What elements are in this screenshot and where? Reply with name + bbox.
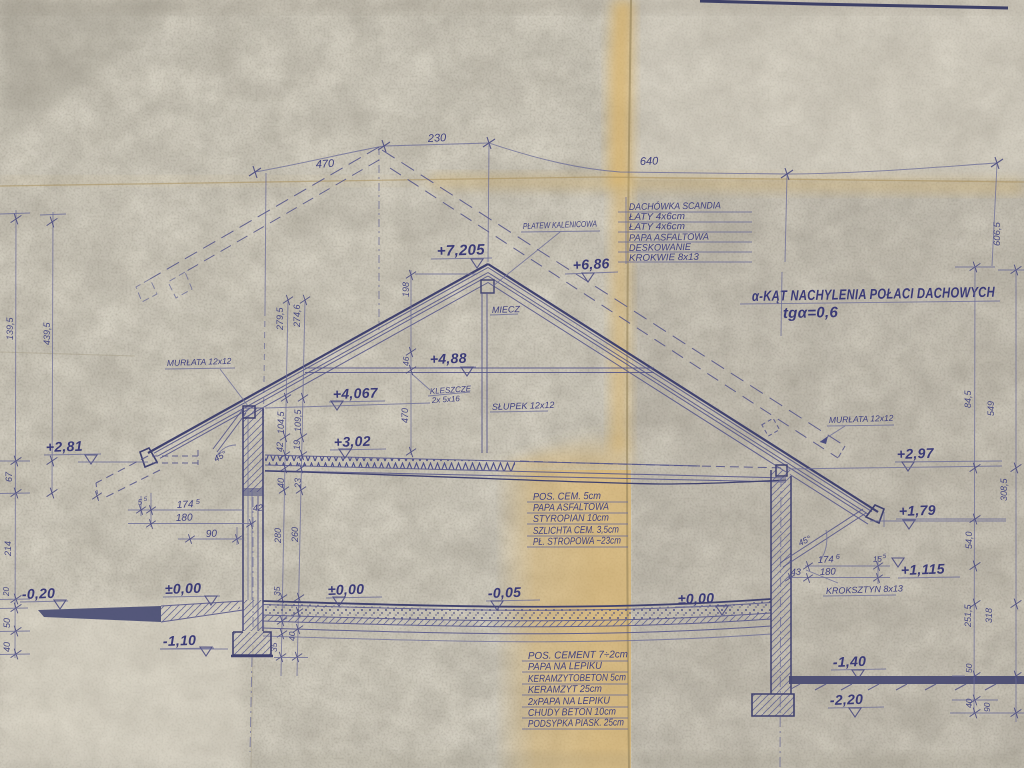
svg-text:+1,79: +1,79	[899, 502, 936, 519]
svg-text:5: 5	[196, 499, 200, 506]
svg-text:KERAMZYT 25cm: KERAMZYT 25cm	[528, 684, 602, 696]
svg-text:23: 23	[293, 478, 303, 489]
svg-text:-2,20: -2,20	[830, 691, 864, 708]
svg-text:439,5: 439,5	[42, 321, 52, 345]
svg-text:54,0: 54,0	[964, 531, 974, 549]
svg-text:470: 470	[315, 158, 335, 171]
svg-text:470: 470	[400, 408, 410, 423]
svg-text:606,5: 606,5	[992, 222, 1003, 246]
svg-text:46: 46	[401, 356, 411, 366]
svg-text:318: 318	[984, 608, 994, 623]
svg-text:+1,115: +1,115	[901, 560, 946, 578]
svg-text:67: 67	[4, 471, 14, 482]
svg-text:6: 6	[836, 554, 840, 561]
svg-text:198: 198	[401, 282, 411, 297]
svg-text:50: 50	[964, 663, 974, 673]
svg-text:40: 40	[2, 642, 12, 652]
svg-text:104,5: 104,5	[276, 410, 286, 434]
svg-text:+4,067: +4,067	[333, 384, 379, 402]
svg-text:±0,00: ±0,00	[678, 590, 715, 607]
svg-text:174: 174	[177, 499, 195, 511]
svg-text:PAPA NA LEPIKU: PAPA NA LEPIKU	[528, 661, 603, 673]
svg-text:40: 40	[276, 478, 286, 488]
svg-text:84,5: 84,5	[963, 389, 973, 408]
svg-text:-1,10: -1,10	[163, 632, 197, 649]
svg-text:42: 42	[275, 442, 285, 452]
svg-text:KERAMZYTOBETON 5cm: KERAMZYTOBETON 5cm	[528, 672, 626, 685]
svg-text:180: 180	[176, 512, 193, 524]
svg-text:90: 90	[206, 529, 218, 540]
svg-text:139,5: 139,5	[5, 316, 15, 340]
svg-text:308,5: 308,5	[999, 477, 1009, 501]
svg-text:tgα=0,6: tgα=0,6	[783, 304, 839, 322]
svg-text:POS. CEMENT 7÷2cm: POS. CEMENT 7÷2cm	[528, 649, 628, 662]
svg-text:+2,81: +2,81	[46, 438, 83, 455]
svg-text:+3,02: +3,02	[334, 433, 371, 450]
svg-text:+7,205: +7,205	[437, 241, 486, 260]
svg-text:±0,00: ±0,00	[328, 581, 365, 598]
svg-text:STYROPIAN 10cm: STYROPIAN 10cm	[533, 513, 609, 525]
svg-text:-0,05: -0,05	[488, 584, 522, 601]
svg-text:251,5: 251,5	[963, 603, 973, 628]
svg-text:42: 42	[253, 502, 264, 513]
svg-text:174: 174	[818, 554, 834, 566]
svg-text:640: 640	[640, 155, 660, 168]
svg-text:43: 43	[791, 567, 801, 577]
svg-text:214: 214	[3, 541, 13, 557]
svg-text:20: 20	[2, 587, 11, 597]
svg-text:280: 280	[273, 528, 283, 544]
svg-text:549: 549	[986, 401, 996, 416]
svg-text:+2,97: +2,97	[897, 445, 935, 462]
svg-text:+4,88: +4,88	[430, 350, 467, 367]
svg-text:230: 230	[427, 132, 448, 145]
svg-text:±0,00: ±0,00	[165, 580, 202, 597]
svg-text:40: 40	[287, 631, 297, 641]
svg-text:19: 19	[292, 440, 302, 450]
svg-text:260: 260	[290, 527, 300, 543]
svg-text:+6,86: +6,86	[572, 255, 610, 273]
svg-text:35: 35	[272, 586, 282, 596]
svg-text:PODSYPKA PIASK. 25cm: PODSYPKA PIASK. 25cm	[528, 717, 624, 730]
svg-text:PŁ. STROPOWA ~23cm: PŁ. STROPOWA ~23cm	[533, 535, 621, 548]
svg-text:50: 50	[2, 618, 12, 628]
svg-text:274,6: 274,6	[292, 304, 302, 328]
svg-text:279,5: 279,5	[275, 306, 285, 331]
svg-text:MIECZ: MIECZ	[492, 304, 521, 315]
svg-text:90: 90	[982, 702, 992, 712]
svg-text:-1,40: -1,40	[833, 653, 867, 670]
svg-text:109,5: 109,5	[293, 408, 303, 432]
